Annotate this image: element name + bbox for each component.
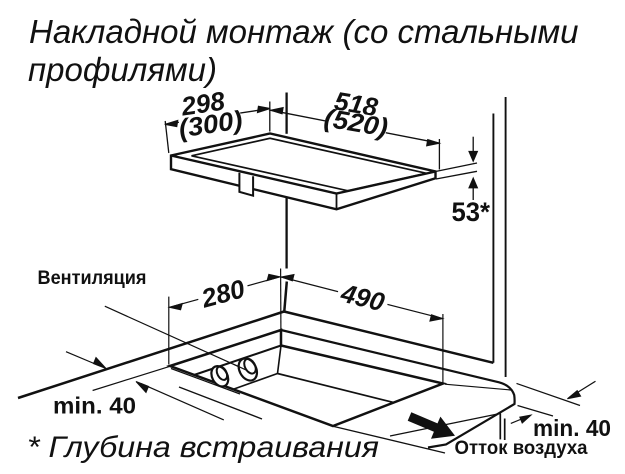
- svg-text:min. 40: min. 40: [53, 393, 136, 419]
- svg-text:53*: 53*: [452, 197, 491, 227]
- svg-text:Вентиляция: Вентиляция: [38, 268, 147, 289]
- svg-text:Отток воздуха: Отток воздуха: [455, 438, 588, 459]
- svg-text:Накладной монтаж (со стальными: Накладной монтаж (со стальными: [29, 13, 578, 50]
- svg-text:* Глубина встраивания: * Глубина встраивания: [27, 431, 379, 464]
- svg-text:профилями): профилями): [28, 51, 217, 88]
